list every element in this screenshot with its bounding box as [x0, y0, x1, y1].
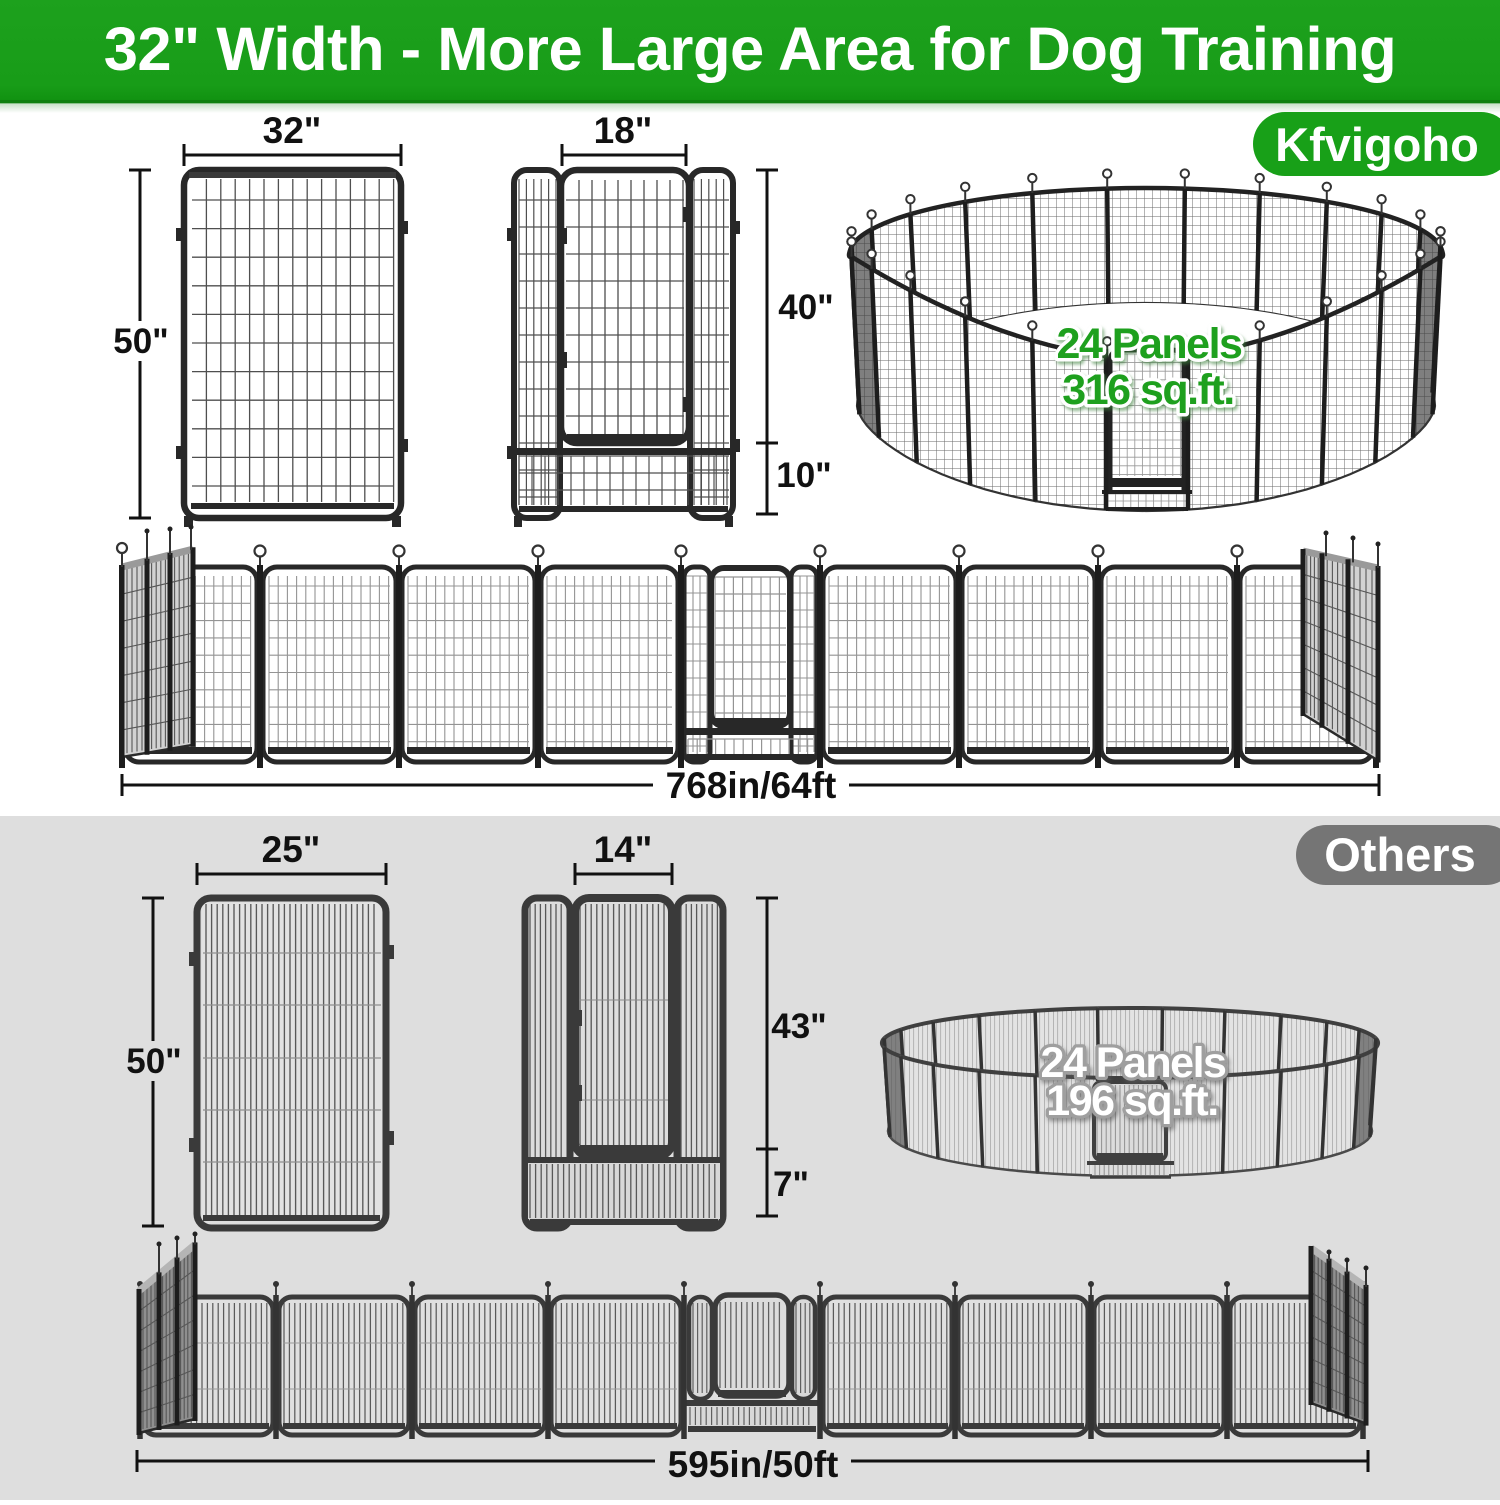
svg-text:595in/50ft: 595in/50ft — [668, 1444, 839, 1485]
svg-text:10": 10" — [776, 456, 832, 495]
svg-text:50": 50" — [126, 1042, 182, 1081]
svg-text:316 sq.ft.: 316 sq.ft. — [1062, 366, 1233, 414]
svg-text:196 sq.ft.: 196 sq.ft. — [1046, 1077, 1217, 1125]
svg-text:32" Width - More Large Area fo: 32" Width - More Large Area for Dog Trai… — [104, 15, 1397, 84]
svg-text:14": 14" — [594, 829, 653, 870]
svg-text:25": 25" — [262, 829, 321, 870]
svg-text:18": 18" — [594, 110, 653, 151]
svg-text:Others: Others — [1324, 828, 1476, 881]
svg-text:32": 32" — [263, 110, 322, 151]
svg-text:Kfvigoho: Kfvigoho — [1275, 118, 1479, 171]
svg-text:40": 40" — [778, 288, 834, 327]
svg-text:50": 50" — [113, 322, 169, 361]
svg-text:768in/64ft: 768in/64ft — [666, 765, 837, 806]
svg-text:24 Panels: 24 Panels — [1057, 320, 1242, 368]
svg-text:43": 43" — [771, 1007, 827, 1046]
svg-text:7": 7" — [773, 1165, 809, 1204]
